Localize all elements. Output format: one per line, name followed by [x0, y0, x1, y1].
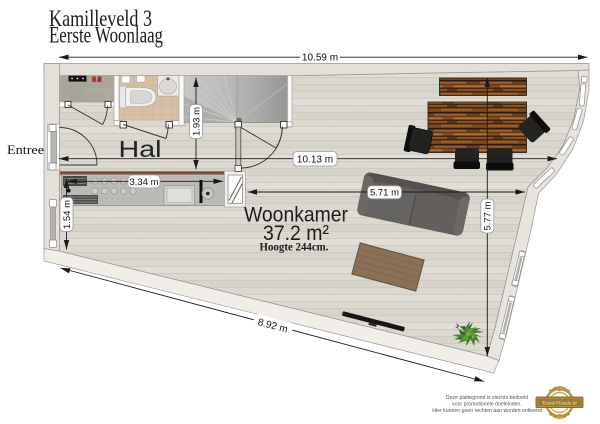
svg-text:10.59 m: 10.59 m: [302, 53, 338, 64]
svg-text:5.71 m: 5.71 m: [370, 188, 399, 199]
svg-text:Hoogte 244cm.: Hoogte 244cm.: [260, 242, 329, 254]
svg-text:voor promotionele doeleinden.: voor promotionele doeleinden.: [452, 402, 522, 408]
svg-text:Entree: Entree: [7, 142, 44, 157]
svg-text:5.77 m: 5.77 m: [483, 201, 494, 230]
svg-text:Eerste Woonlaag: Eerste Woonlaag: [49, 23, 163, 48]
svg-text:EstateVisuals.nl: EstateVisuals.nl: [542, 401, 577, 407]
svg-text:1.93 m: 1.93 m: [191, 107, 202, 136]
svg-text:Deze plattegrond is slechts be: Deze plattegrond is slechts bedoeld: [446, 395, 528, 401]
svg-text:10.13 m: 10.13 m: [297, 155, 333, 166]
svg-text:Hier kunnen geen rechten aan w: Hier kunnen geen rechten aan worden ontl…: [432, 408, 542, 414]
svg-text:1.54 m: 1.54 m: [62, 200, 73, 229]
svg-text:Hal: Hal: [119, 136, 162, 162]
svg-text:3.34 m: 3.34 m: [129, 177, 158, 188]
